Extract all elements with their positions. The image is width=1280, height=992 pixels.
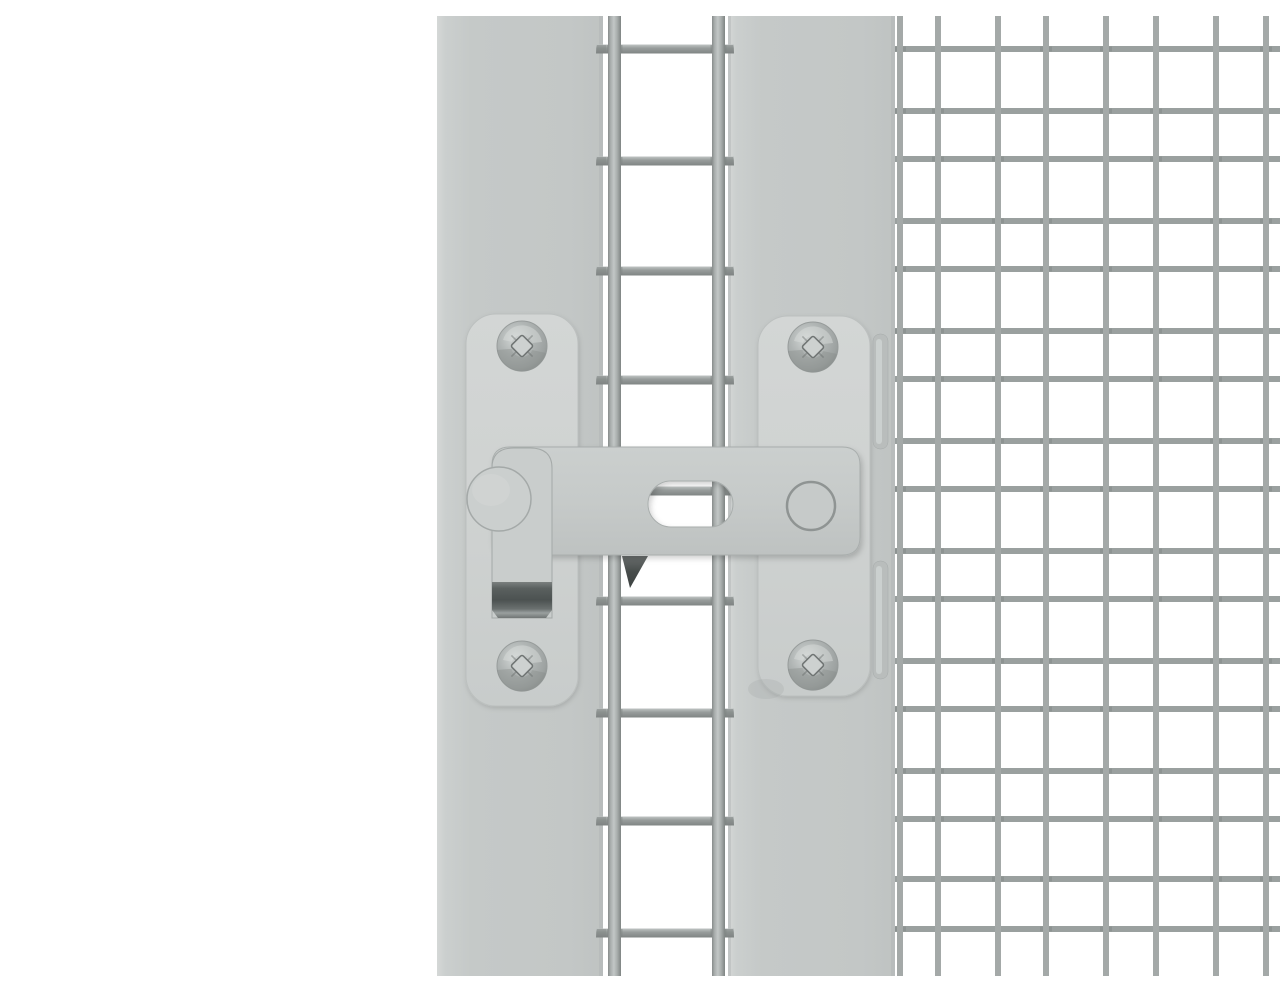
cage-latch-scene [40, 16, 1280, 976]
plate-shadow-patch [748, 679, 784, 699]
weld-joint [597, 157, 606, 165]
weld-joint [597, 45, 606, 53]
weld-joint [597, 929, 606, 937]
screw-bottom-left [497, 641, 547, 692]
pivot-rivet [787, 482, 835, 530]
screw-top-left [497, 321, 547, 372]
coarse-wire-vertical [712, 16, 725, 976]
product-photo: Gray steel slide latch mounted across a … [40, 16, 1280, 976]
weld-joint [597, 709, 606, 717]
door-post-right-outer-edge [891, 16, 895, 976]
weld-joint [597, 817, 606, 825]
screw-top-right [788, 322, 838, 373]
weld-joint [597, 376, 606, 384]
catch-tab-bottom [873, 561, 888, 679]
handle-grip-tip [492, 582, 552, 618]
weld-joint [597, 597, 606, 605]
weld-joint [597, 267, 606, 275]
screw-bottom-right [788, 640, 838, 691]
catch-tab-top [873, 334, 888, 449]
knob-highlight [472, 474, 510, 506]
